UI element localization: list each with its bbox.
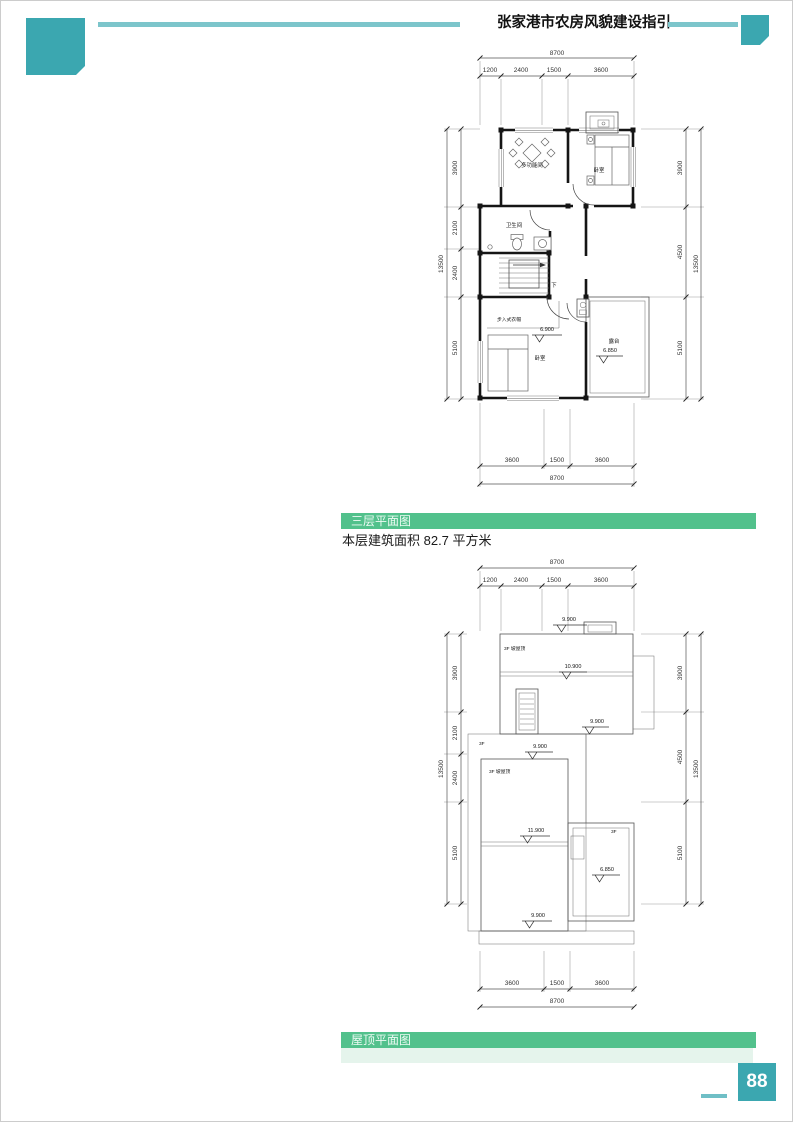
bed-bottom: [488, 335, 528, 391]
level-marker-midright-9900: 9.900: [582, 719, 609, 734]
dim-left-total: 13500: [438, 255, 445, 273]
room-label-bath: 卫生间: [506, 221, 522, 229]
dimension-lines: [447, 58, 701, 484]
dim-bottom-total: 8700: [550, 475, 565, 482]
bed-top: [587, 135, 629, 185]
flat-label-left: 3F: [479, 741, 485, 747]
room-label-multi: 多功能间: [521, 161, 543, 169]
dim-left-1: 3900: [452, 665, 459, 680]
dim-right-3: 5100: [677, 845, 684, 860]
header-rule-left: [98, 22, 460, 27]
dim-left-3: 2400: [452, 770, 459, 785]
dim-right-2: 4500: [677, 749, 684, 764]
dim-left-4: 5100: [452, 340, 459, 355]
dim-bottom-3: 3600: [595, 980, 610, 987]
dim-right-3: 5100: [677, 340, 684, 355]
section-bar-floor3: 三层平面图: [341, 513, 756, 529]
dim-bottom-3: 3600: [595, 457, 610, 464]
dim-bottom-1: 3600: [505, 457, 520, 464]
dim-top-1: 1200: [483, 67, 498, 74]
svg-text:9.900: 9.900: [562, 617, 576, 623]
svg-text:6.850: 6.850: [600, 867, 614, 873]
page-number: 88: [738, 1063, 776, 1101]
dim-right-total: 13500: [693, 255, 700, 273]
dim-bottom-2: 1500: [550, 980, 565, 987]
dormer-roof: [633, 656, 654, 729]
dim-bottom-2: 1500: [550, 457, 565, 464]
header-title: 张家港市农房风貌建设指引: [497, 11, 669, 32]
level-marker-11900: 11.900: [520, 828, 550, 843]
dim-top-2: 2400: [514, 67, 529, 74]
level-marker-6850: 6.850: [592, 867, 620, 882]
decor-square-topleft: [26, 18, 85, 75]
chimney: [584, 622, 616, 634]
level-marker-6900: 6.900: [532, 327, 562, 342]
document-page: 张家港市农房风貌建设指引 8700 1200 2400 1500 3600 39…: [0, 0, 793, 1122]
skylight: [516, 689, 538, 734]
bathroom-fixtures: [488, 235, 551, 251]
eave-band: [479, 931, 634, 944]
third-floor-plan-drawing: 8700 1200 2400 1500 3600 3900 2100 2400 …: [401, 41, 751, 501]
dim-right-2: 4500: [677, 244, 684, 259]
stair-down-label: 下: [551, 282, 557, 289]
svg-text:9.900: 9.900: [533, 744, 547, 750]
svg-text:10.900: 10.900: [565, 664, 582, 670]
dim-top-3: 1500: [547, 67, 562, 74]
roof-label-lower: 3F 坡屋顶: [489, 768, 511, 775]
room-label-bedroom-top: 卧室: [594, 166, 605, 174]
level-marker-mid-9900: 9.900: [525, 744, 553, 759]
dim-left-3: 2400: [452, 265, 459, 280]
roof-label-upper: 3F 坡屋顶: [504, 645, 526, 652]
terrace-vent: [577, 299, 589, 317]
section-bar-floor3-label: 三层平面图: [351, 514, 411, 528]
lower-roof: [481, 759, 568, 931]
dim-left-2: 2100: [452, 220, 459, 235]
level-marker-top-9900: 9.900: [553, 617, 587, 632]
svg-text:6.900: 6.900: [540, 327, 554, 333]
svg-text:9.900: 9.900: [590, 719, 604, 725]
svg-text:9.900: 9.900: [531, 913, 545, 919]
room-label-terrace: 露台: [609, 337, 620, 345]
dim-left-2: 2100: [452, 725, 459, 740]
section-bar-roof-label: 屋顶平面图: [351, 1033, 411, 1047]
dim-top-4: 3600: [594, 577, 609, 584]
stairs: [499, 258, 549, 293]
dimension-ticks: [445, 56, 704, 487]
dim-top-3: 1500: [547, 577, 562, 584]
section-bar-roof: 屋顶平面图: [341, 1032, 756, 1048]
roof-plan-drawing: 8700 1200 2400 1500 3600 3900 2100 2400 …: [401, 551, 751, 1021]
room-label-closet: 步入式衣帽: [497, 316, 521, 323]
dim-top-total: 8700: [550, 559, 565, 566]
pale-green-strip: [341, 1048, 753, 1063]
footer-dash: [701, 1094, 727, 1098]
svg-text:6.850: 6.850: [603, 348, 617, 354]
dim-top-total: 8700: [550, 50, 565, 57]
room-label-bedroom-bottom: 卧室: [535, 354, 546, 362]
dim-right-1: 3900: [677, 160, 684, 175]
svg-text:11.900: 11.900: [528, 828, 544, 834]
dim-left-1: 3900: [452, 160, 459, 175]
dimension-ticks: [445, 566, 704, 1010]
dim-right-1: 3900: [677, 665, 684, 680]
floor3-area-text: 本层建筑面积 82.7 平方米: [342, 530, 492, 549]
dim-left-4: 5100: [452, 845, 459, 860]
extension-lines: [444, 61, 704, 487]
level-marker-bottom-9900: 9.900: [522, 913, 552, 928]
flat-label-right: 3F: [611, 829, 617, 835]
terrace: [586, 297, 649, 397]
dim-bottom-1: 3600: [505, 980, 520, 987]
dim-right-total: 13500: [693, 760, 700, 778]
dim-bottom-total: 8700: [550, 998, 565, 1005]
dim-left-total: 13500: [438, 760, 445, 778]
dim-top-2: 2400: [514, 577, 529, 584]
dim-top-1: 1200: [483, 577, 498, 584]
dim-top-4: 3600: [594, 67, 609, 74]
header-rule-right: [668, 22, 738, 27]
level-marker-6850: 6.850: [596, 348, 623, 363]
level-marker-10900: 10.900: [559, 664, 587, 679]
